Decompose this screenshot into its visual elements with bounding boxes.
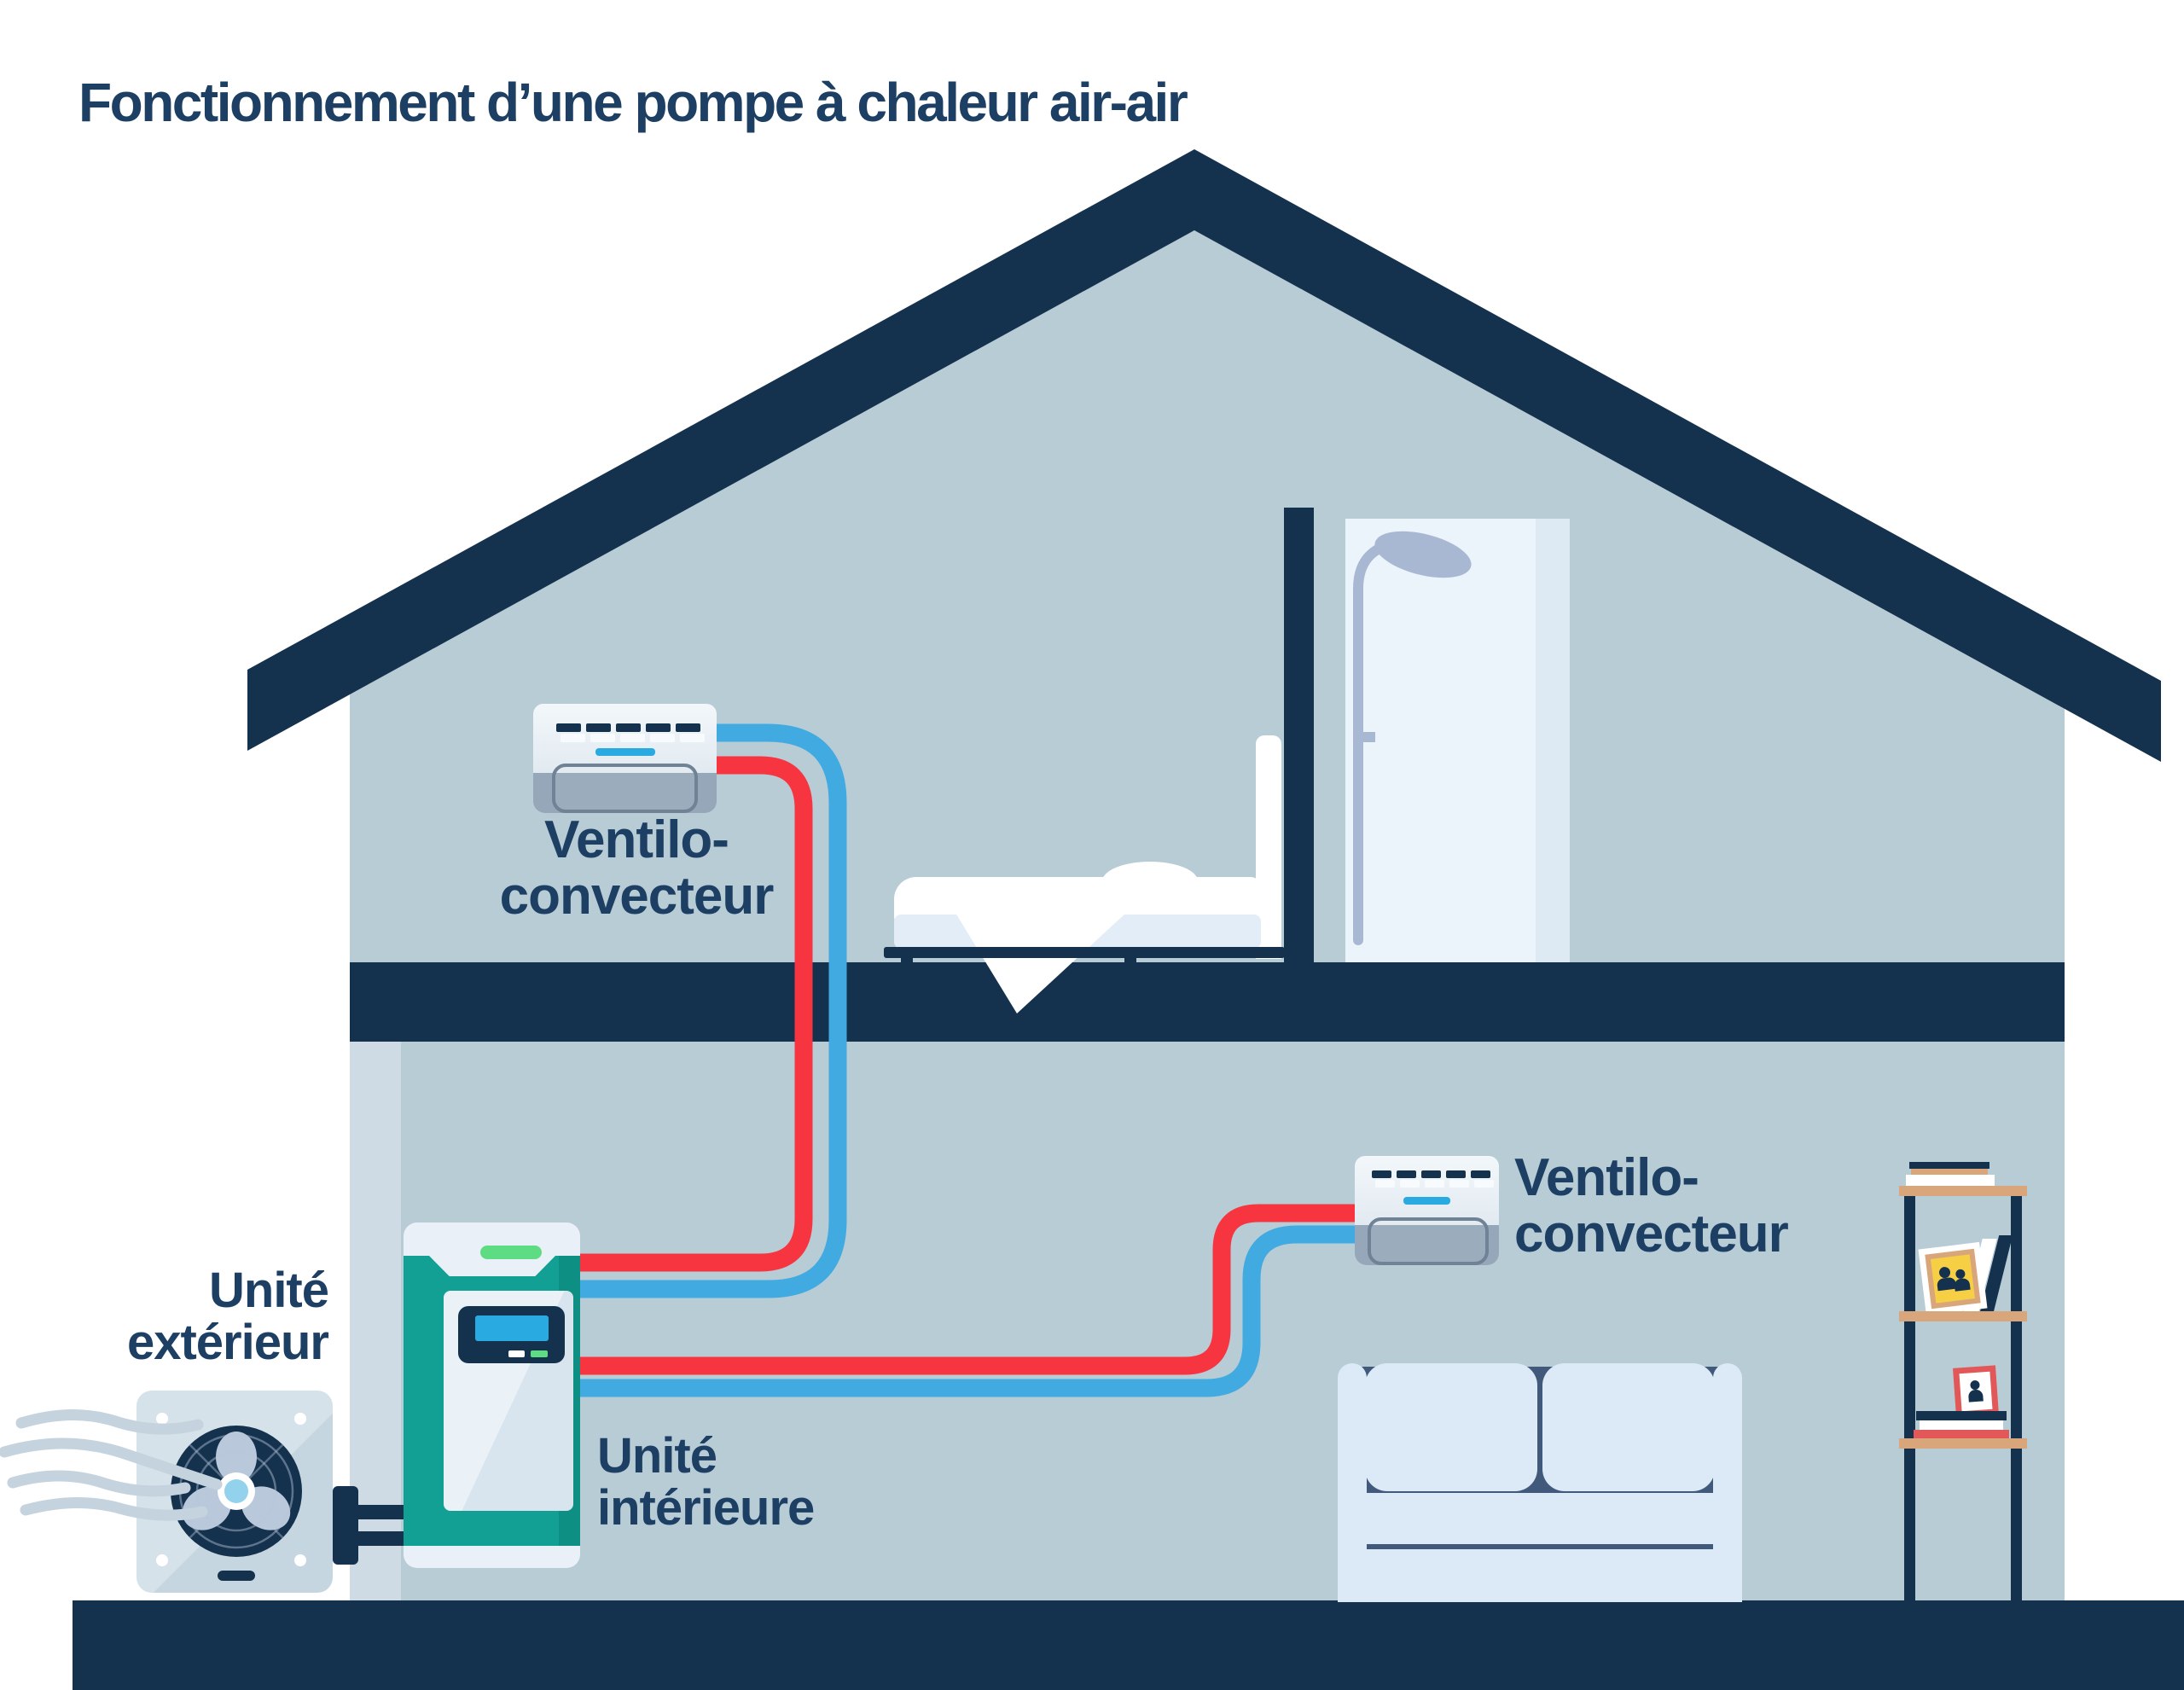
label-line: Ventilo- [432, 812, 841, 868]
label-line: Unité [47, 1264, 328, 1316]
label-line: extérieur [47, 1316, 328, 1368]
label-line: Ventilo- [1514, 1150, 1788, 1206]
wind-wave-icon [21, 1414, 198, 1429]
label-ventilo-convecteur-upper: Ventilo- convecteur [432, 812, 841, 924]
label-line: intérieure [597, 1482, 814, 1534]
label-ventilo-convecteur-lower: Ventilo- convecteur [1514, 1150, 1788, 1262]
airflow-waves [0, 0, 2184, 1690]
label-line: convecteur [432, 868, 841, 925]
label-unite-interieure: Unité intérieure [597, 1430, 814, 1535]
label-line: convecteur [1514, 1206, 1788, 1263]
label-line: Unité [597, 1430, 814, 1482]
infographic-heat-pump: Fonctionnement d’une pompe à chaleur air… [0, 0, 2184, 1690]
page-title: Fonctionnement d’une pompe à chaleur air… [78, 71, 1186, 134]
label-unite-exterieur: Unité extérieur [47, 1264, 328, 1369]
wind-wave-icon [26, 1502, 202, 1515]
wind-wave-icon [13, 1476, 185, 1491]
